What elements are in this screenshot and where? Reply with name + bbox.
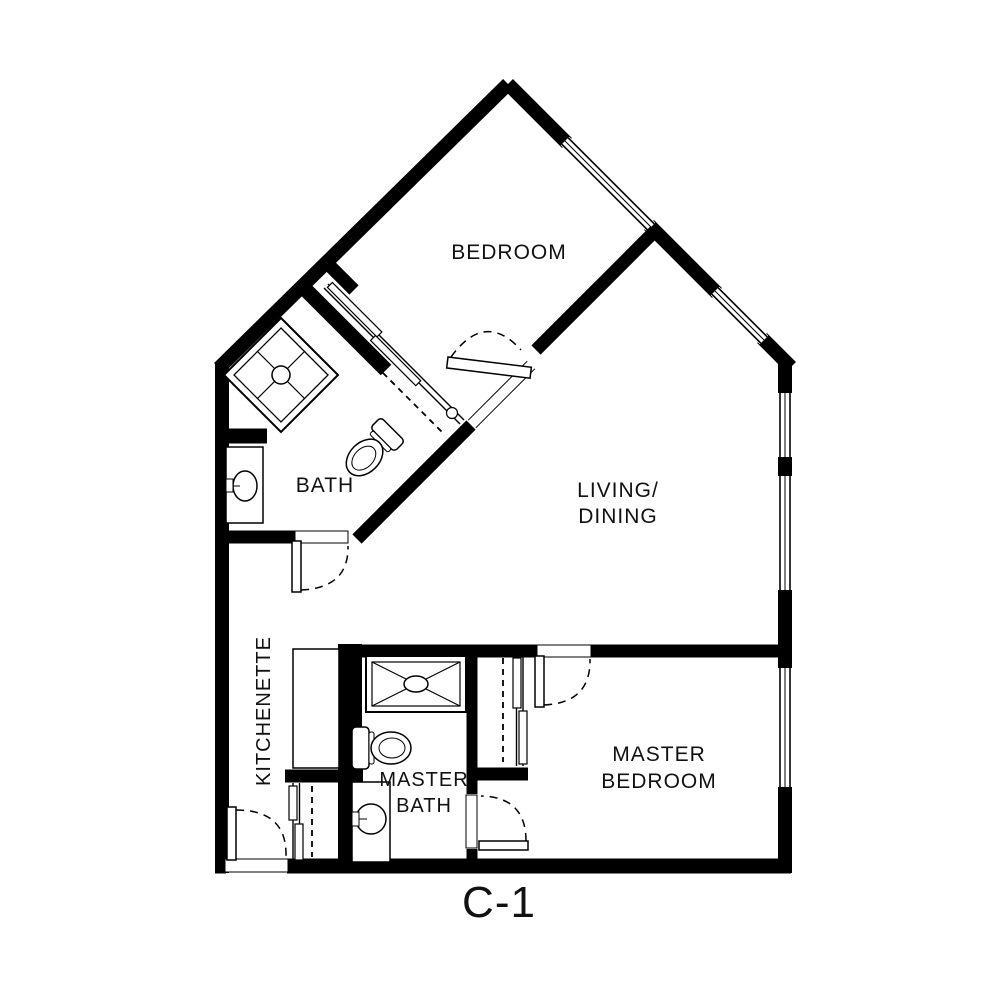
- master-bath-shower-icon: [366, 656, 466, 712]
- master-bedroom-window-icon: [779, 668, 791, 787]
- bedroom-door-icon: [447, 332, 535, 428]
- wall-closet-end-cap: [322, 258, 354, 290]
- master-bath-label-line2: BATH: [396, 795, 452, 817]
- plan-code-label: C-1: [462, 878, 536, 927]
- closet-handle-icon: [447, 408, 458, 419]
- floor-plan-sheet: BEDROOM LIVING/ DINING BATH KITCHENETTE …: [0, 0, 1000, 1000]
- master-bedroom-door-icon: [535, 645, 591, 707]
- floor-plan-drawing: BEDROOM LIVING/ DINING BATH KITCHENETTE …: [0, 0, 1000, 1000]
- entry-door-icon: [225, 807, 288, 872]
- master-bedroom-closet-icon: [503, 655, 527, 766]
- bath-door-icon: [292, 531, 348, 592]
- bath-shower-icon: [224, 318, 338, 432]
- bath-label: BATH: [296, 474, 354, 497]
- kitchenette-fixtures: [293, 649, 339, 768]
- master-bedroom-label-line1: MASTER: [612, 743, 706, 766]
- bedroom-label: BEDROOM: [451, 241, 567, 264]
- living-dining-label-line2: DINING: [578, 505, 658, 528]
- master-bath-door-icon: [466, 795, 528, 850]
- master-bath-label-line1: MASTER: [379, 769, 468, 791]
- entry-closet-icon: [289, 783, 312, 861]
- living-window-upper-icon: [779, 393, 791, 457]
- kitchenette-counter-icon: [293, 649, 339, 768]
- wall-right-diagonal-b: [649, 225, 717, 293]
- master-bath-fixtures: [352, 656, 466, 862]
- living-diagonal-window-icon: [712, 288, 767, 343]
- living-window-lower-icon: [779, 476, 791, 590]
- wall-left-diagonal: [219, 84, 508, 368]
- master-bath-toilet-icon: [352, 727, 411, 769]
- wall-right-diagonal-a: [508, 84, 567, 143]
- bedroom-window-icon: [562, 138, 654, 230]
- bath-sink-icon: [226, 447, 263, 523]
- master-bedroom-label-line2: BEDROOM: [601, 770, 717, 793]
- master-bath-sink-icon: [352, 782, 390, 862]
- kitchenette-label: KITCHENETTE: [253, 636, 275, 786]
- living-dining-label-line1: LIVING/: [577, 479, 659, 502]
- windows: [562, 138, 791, 787]
